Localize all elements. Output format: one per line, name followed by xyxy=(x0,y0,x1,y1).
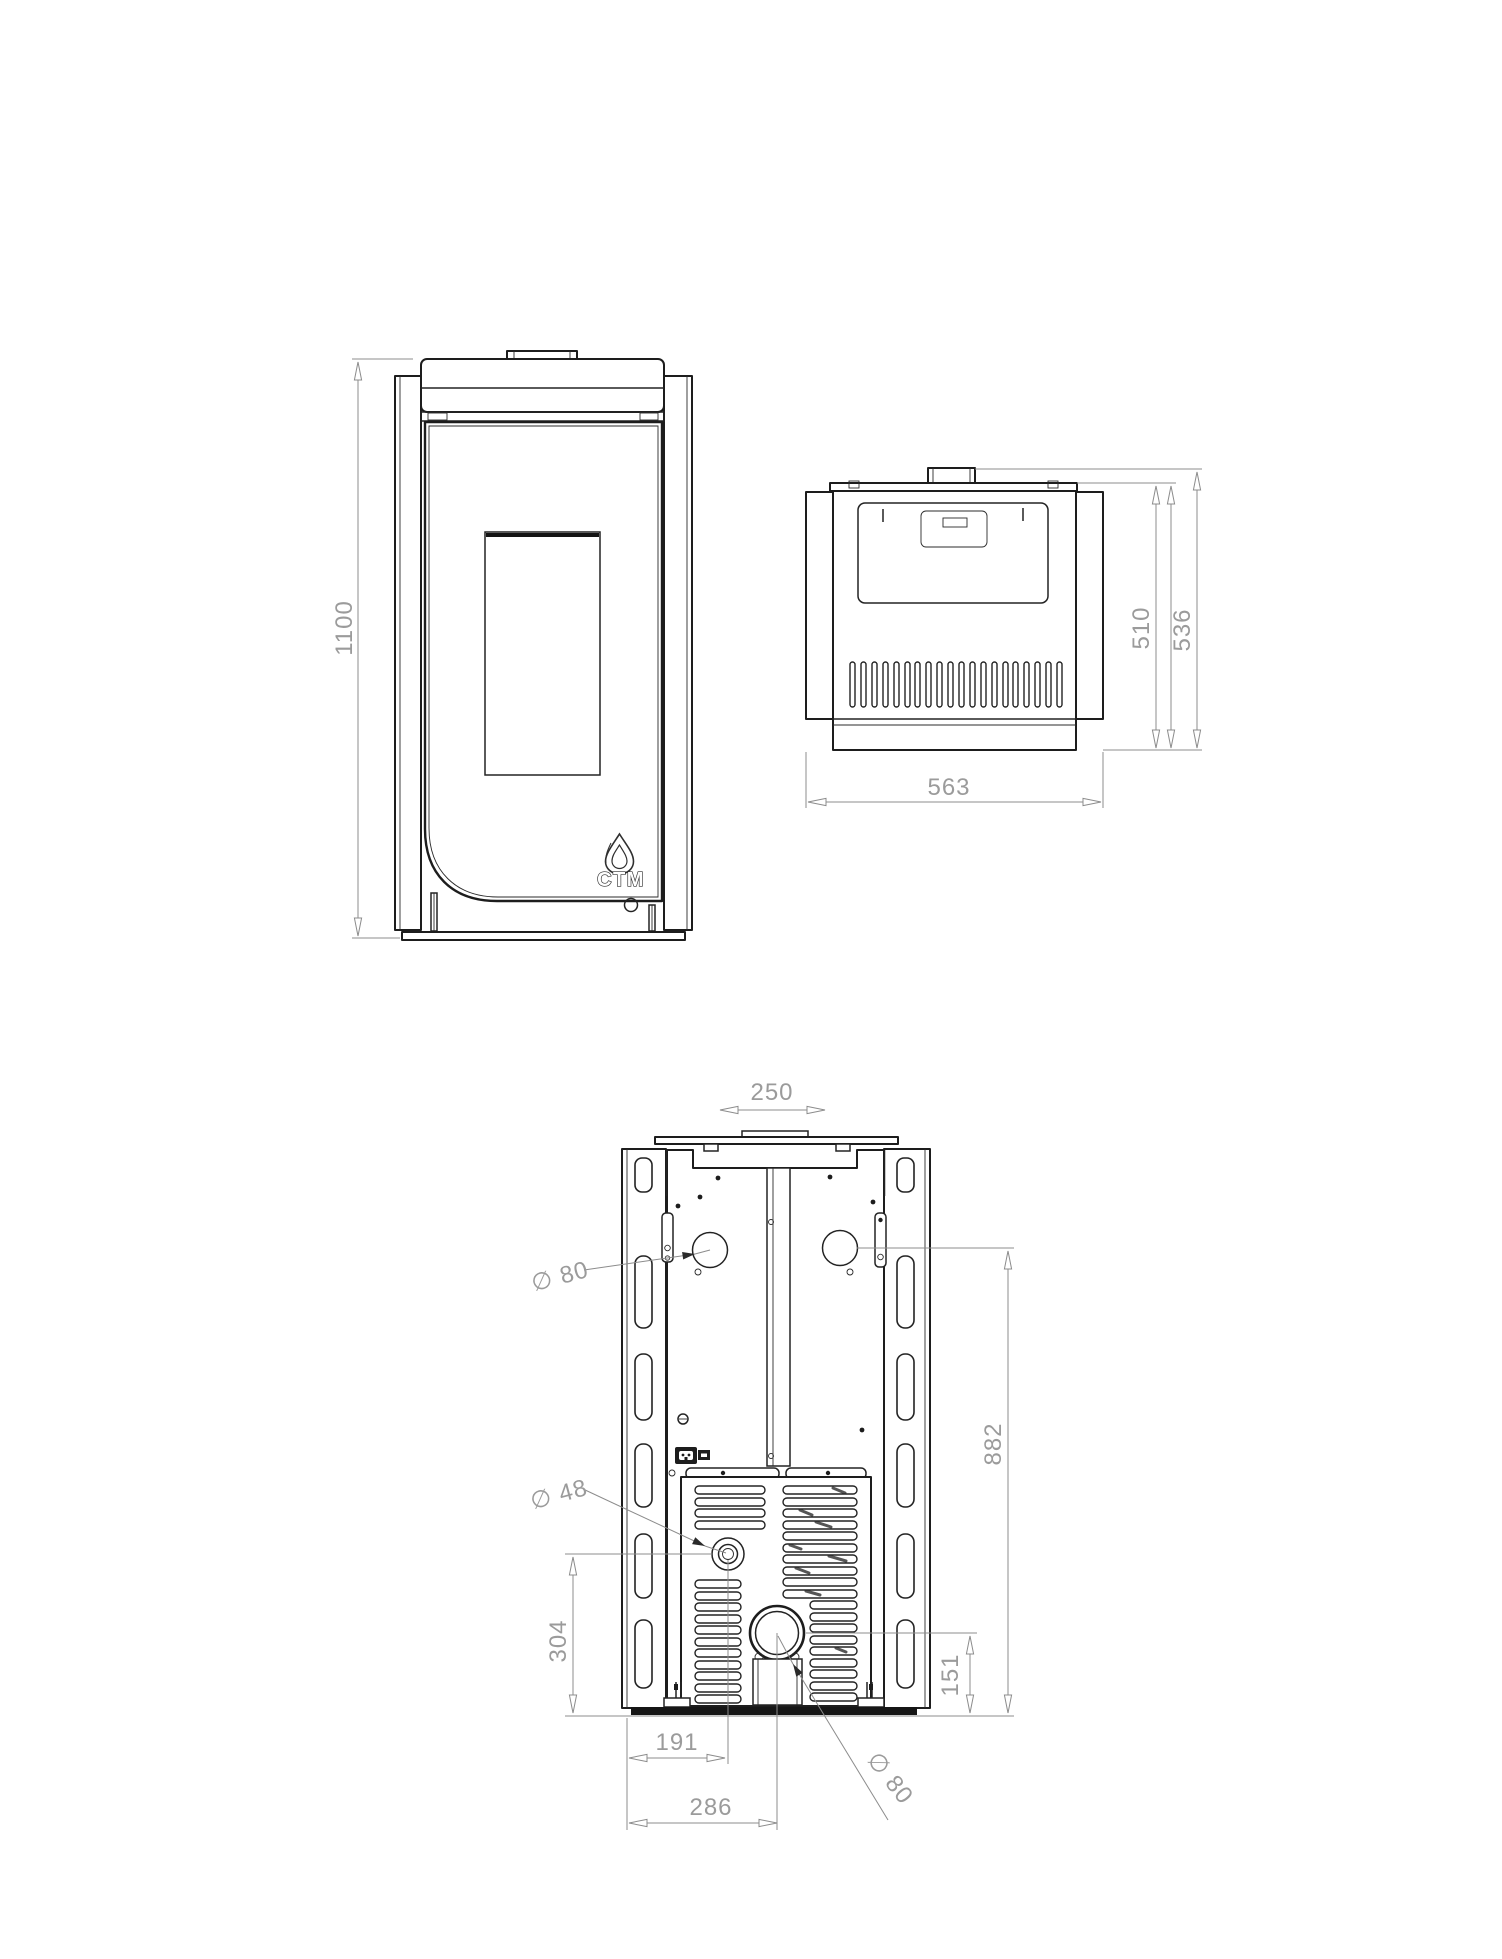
top-chimney-stub xyxy=(928,468,975,484)
front-left-side-panel xyxy=(395,376,421,930)
top-right-panel xyxy=(1076,492,1103,719)
dim-label-882: 882 xyxy=(980,1422,1007,1465)
front-top-cap xyxy=(421,359,664,412)
top-left-panel xyxy=(806,492,833,719)
dim-label-151: 151 xyxy=(937,1653,964,1696)
brand-logo-text: CTM xyxy=(597,869,645,891)
rear-view: 250 xyxy=(622,1079,930,1715)
dim-label-1100: 1100 xyxy=(331,600,358,656)
rear-clip-left xyxy=(704,1144,718,1151)
dim-label-536: 536 xyxy=(1169,608,1196,651)
technical-drawing-page: CTM 1100 xyxy=(0,0,1502,1959)
dim-label-250: 250 xyxy=(750,1079,793,1106)
top-body xyxy=(833,491,1076,750)
rear-base-plate xyxy=(631,1707,917,1715)
dim-label-304: 304 xyxy=(545,1619,572,1662)
rear-top-plate xyxy=(655,1137,898,1144)
front-base-plinth xyxy=(402,932,685,940)
stove-dimension-drawing: CTM 1100 xyxy=(0,0,1502,1959)
dim-label-510: 510 xyxy=(1128,606,1155,649)
dim-label-563: 563 xyxy=(927,774,970,801)
dim-label-191: 191 xyxy=(655,1729,698,1756)
rear-center-channel xyxy=(767,1168,790,1466)
top-flange xyxy=(830,483,1077,491)
rear-clip-right xyxy=(836,1144,850,1151)
top-view xyxy=(806,468,1103,750)
dim-label-286: 286 xyxy=(689,1794,732,1821)
front-right-side-panel xyxy=(664,376,692,930)
rear-left-bracket xyxy=(662,1213,673,1262)
